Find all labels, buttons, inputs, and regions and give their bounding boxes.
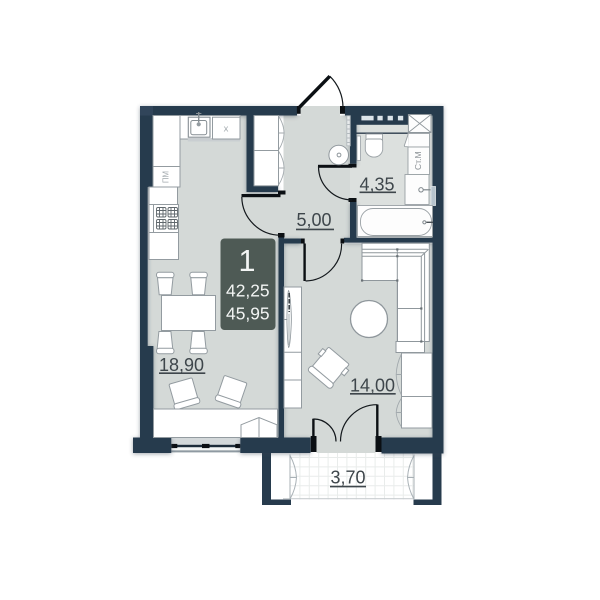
svg-text:x: x (224, 124, 229, 135)
svg-text:14,00: 14,00 (350, 376, 395, 396)
svg-text:45,95: 45,95 (226, 303, 270, 323)
svg-text:18,90: 18,90 (159, 355, 204, 375)
svg-text:1: 1 (239, 244, 256, 278)
svg-text:5,00: 5,00 (297, 210, 332, 230)
svg-text:ПМ: ПМ (162, 171, 171, 183)
svg-text:42,25: 42,25 (226, 280, 270, 300)
svg-text:4,35: 4,35 (360, 174, 395, 194)
svg-text:Ст.М: Ст.М (413, 151, 423, 170)
svg-text:3,70: 3,70 (331, 467, 366, 487)
